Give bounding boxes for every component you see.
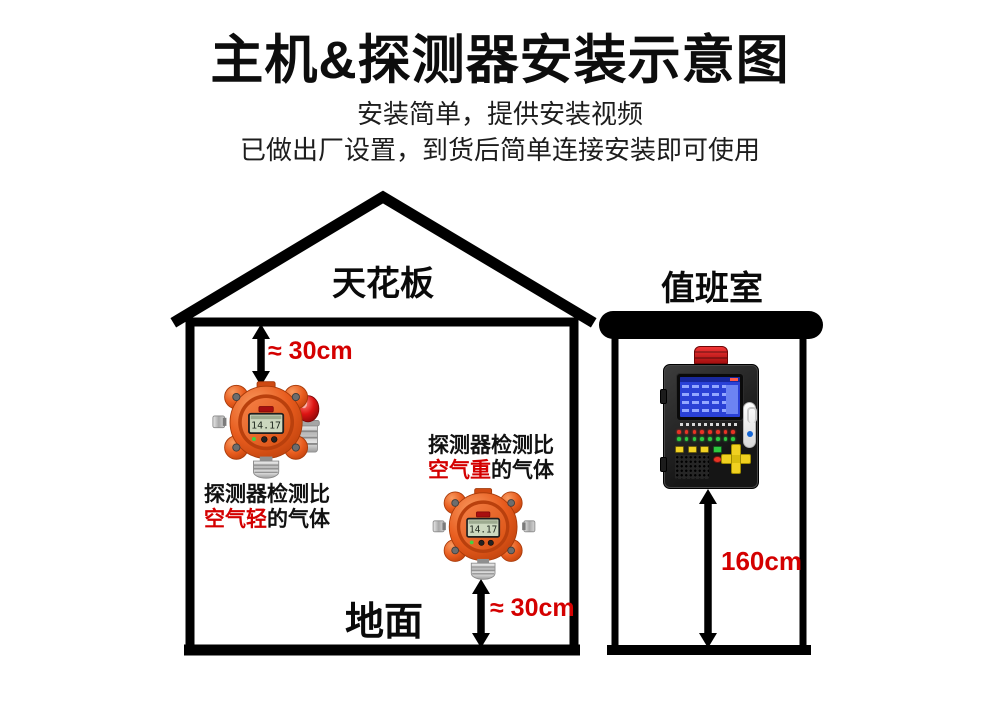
right-cable-gland: [522, 521, 535, 532]
hinge: [660, 457, 667, 472]
duty-room-label: 值班室: [661, 261, 763, 310]
panel-caption-strip: [680, 423, 740, 426]
caption-suffix: 的气体: [491, 459, 554, 482]
ceiling-label: 天花板: [332, 256, 434, 305]
mount-height-label: 160cm: [721, 546, 802, 577]
caption-line1: 探测器检测比: [428, 433, 554, 458]
installation-diagram: 主机&探测器安装示意图 安装简单，提供安装视频 已做出厂设置，到货后简单连接安装…: [0, 0, 1000, 707]
mount-height-arrow: [699, 489, 717, 648]
light-gas-caption: 探测器检测比 空气轻的气体: [204, 482, 330, 532]
detector-lcd-value: 14.17: [469, 525, 497, 536]
caption-highlight: 空气轻: [204, 508, 267, 531]
heavy-gas-caption: 探测器检测比 空气重的气体: [428, 433, 554, 483]
screen-header: [680, 377, 740, 382]
page-title: 主机&探测器安装示意图: [0, 18, 1000, 94]
gas-detector-ceiling: 14.17: [212, 379, 322, 480]
detector-lcd-value: 14.17: [251, 421, 281, 432]
controller-screen: [680, 377, 740, 417]
caption-line2: 空气重的气体: [428, 458, 554, 483]
speaker-grille-icon: [675, 455, 709, 479]
subtitle-line1: 安装简单，提供安装视频: [0, 94, 1000, 131]
status-led-row: [677, 437, 745, 441]
bottom-clearance-arrow: [472, 579, 490, 648]
controller-alarm-beacon-icon: [694, 346, 728, 366]
duty-room-beam: [599, 311, 823, 339]
controller-enclosure: [663, 364, 759, 489]
top-clearance-label: ≈ 30cm: [268, 337, 353, 366]
lock-icon: [747, 431, 753, 437]
floor-label: 地面: [345, 591, 423, 647]
controller-screen-frame: [677, 374, 743, 420]
caption-line1: 探测器检测比: [204, 482, 330, 507]
caption-highlight: 空气重: [428, 459, 491, 482]
controller-unit: [663, 346, 759, 489]
caption-suffix: 的气体: [267, 508, 330, 531]
alarm-led-row: [677, 430, 745, 434]
subtitle-line2: 已做出厂设置，到货后简单连接安装即可使用: [0, 130, 1000, 167]
dpad-navigation: [721, 444, 751, 474]
key-button: [688, 446, 697, 453]
key-button: [700, 446, 709, 453]
screen-side-column: [726, 385, 738, 414]
bottom-clearance-label: ≈ 30cm: [490, 594, 575, 623]
hinge: [660, 389, 667, 404]
key-button: [675, 446, 684, 453]
gas-detector-floor: 14.17: [432, 486, 536, 581]
door-handle: [743, 402, 756, 448]
caption-line2: 空气轻的气体: [204, 507, 330, 532]
screen-data-rows: [682, 385, 726, 414]
